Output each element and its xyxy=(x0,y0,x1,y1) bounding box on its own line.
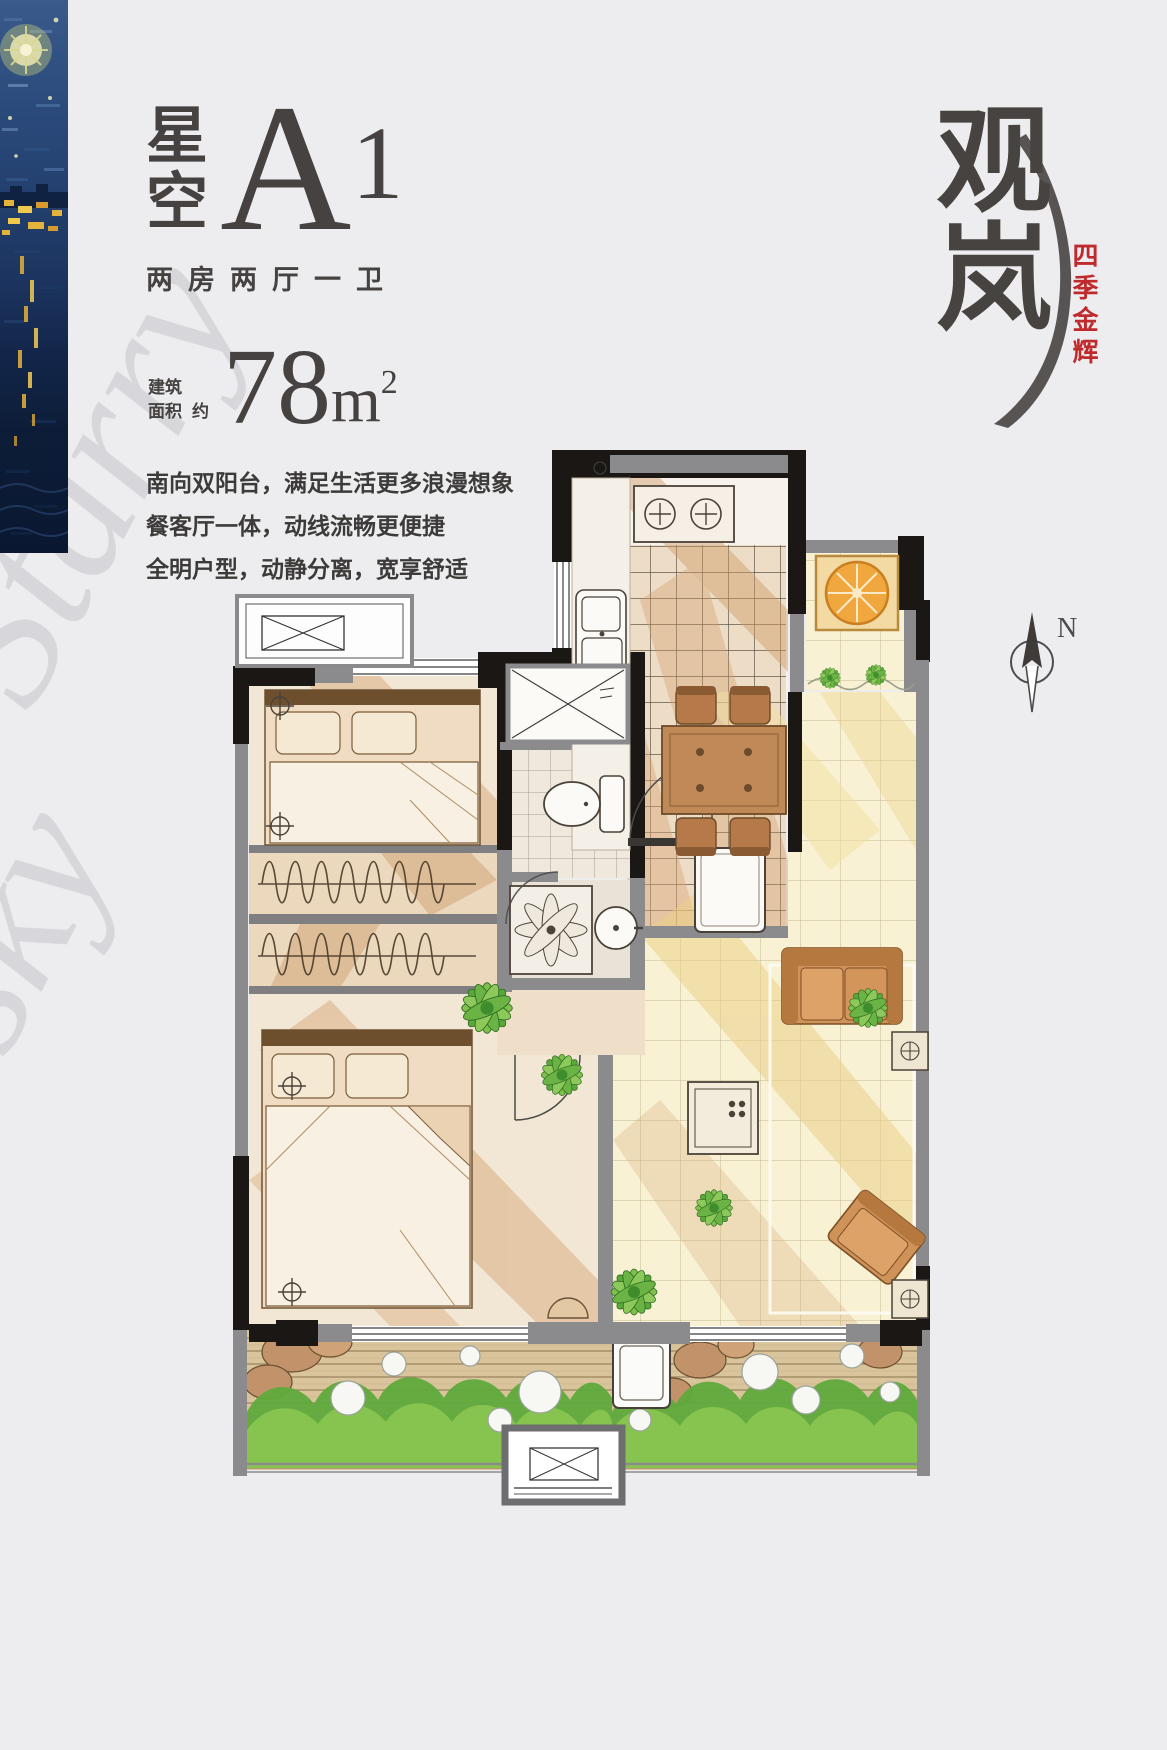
bed-1 xyxy=(265,690,480,845)
brand-subtitle: 四季金辉 xyxy=(1065,242,1102,370)
stove xyxy=(634,486,734,542)
elevator-shaft xyxy=(237,596,412,666)
washing-machine xyxy=(613,1336,670,1408)
description-line: 南向双阳台，满足生活更多浪漫想象 xyxy=(146,462,514,505)
star-icon xyxy=(0,24,52,76)
area-unit: m2 xyxy=(331,351,398,432)
bed-2 xyxy=(262,1030,472,1308)
title-block: 星 空 A 1 xyxy=(146,104,403,238)
poster-page: Starry sky xyxy=(0,0,1167,1750)
dining-table xyxy=(662,726,786,814)
south-balcony xyxy=(233,1327,930,1502)
description-block: 南向双阳台，满足生活更多浪漫想象 餐客厅一体，动线流畅更便捷 全明户型，动静分离… xyxy=(146,462,514,591)
brand-logo: 观 岚 四季金辉 xyxy=(920,100,1110,430)
area-label-top: 建筑 xyxy=(148,376,209,400)
layout-text: 两房两厅一卫 xyxy=(146,258,398,297)
balcony-left-rail xyxy=(233,1330,247,1476)
ac-platform xyxy=(505,1428,622,1502)
title-unit-letter: A xyxy=(220,100,351,238)
bedroom-1 xyxy=(265,690,480,845)
starry-night-artwork xyxy=(0,0,68,553)
compass-icon: N xyxy=(985,595,1105,725)
title-unit-number: 1 xyxy=(351,104,403,238)
orange-slice-table xyxy=(826,562,888,624)
fridge xyxy=(695,848,765,932)
shower-stall xyxy=(508,666,628,742)
shower-floor-drain xyxy=(510,886,592,974)
title-cn-bottom: 空 xyxy=(146,170,208,236)
balcony-right-rail xyxy=(917,1330,930,1476)
coffee-table xyxy=(688,1082,758,1154)
description-line: 餐客厅一体，动线流畅更便捷 xyxy=(146,505,514,548)
title-cn-top: 星 xyxy=(146,104,208,170)
description-line: 全明户型，动静分离，宽享舒适 xyxy=(146,548,514,591)
area-superscript: 2 xyxy=(381,364,398,401)
area-label-bottom: 面积 xyxy=(148,400,182,424)
area-value: 78 xyxy=(223,344,331,432)
brand-char-top: 观 xyxy=(936,104,1052,222)
compass-north-label: N xyxy=(1057,613,1077,644)
brand-char-bottom: 岚 xyxy=(936,222,1052,340)
area-approx: 约 xyxy=(192,400,209,424)
area-block: 建筑 面积 约 78 m2 xyxy=(148,344,398,432)
